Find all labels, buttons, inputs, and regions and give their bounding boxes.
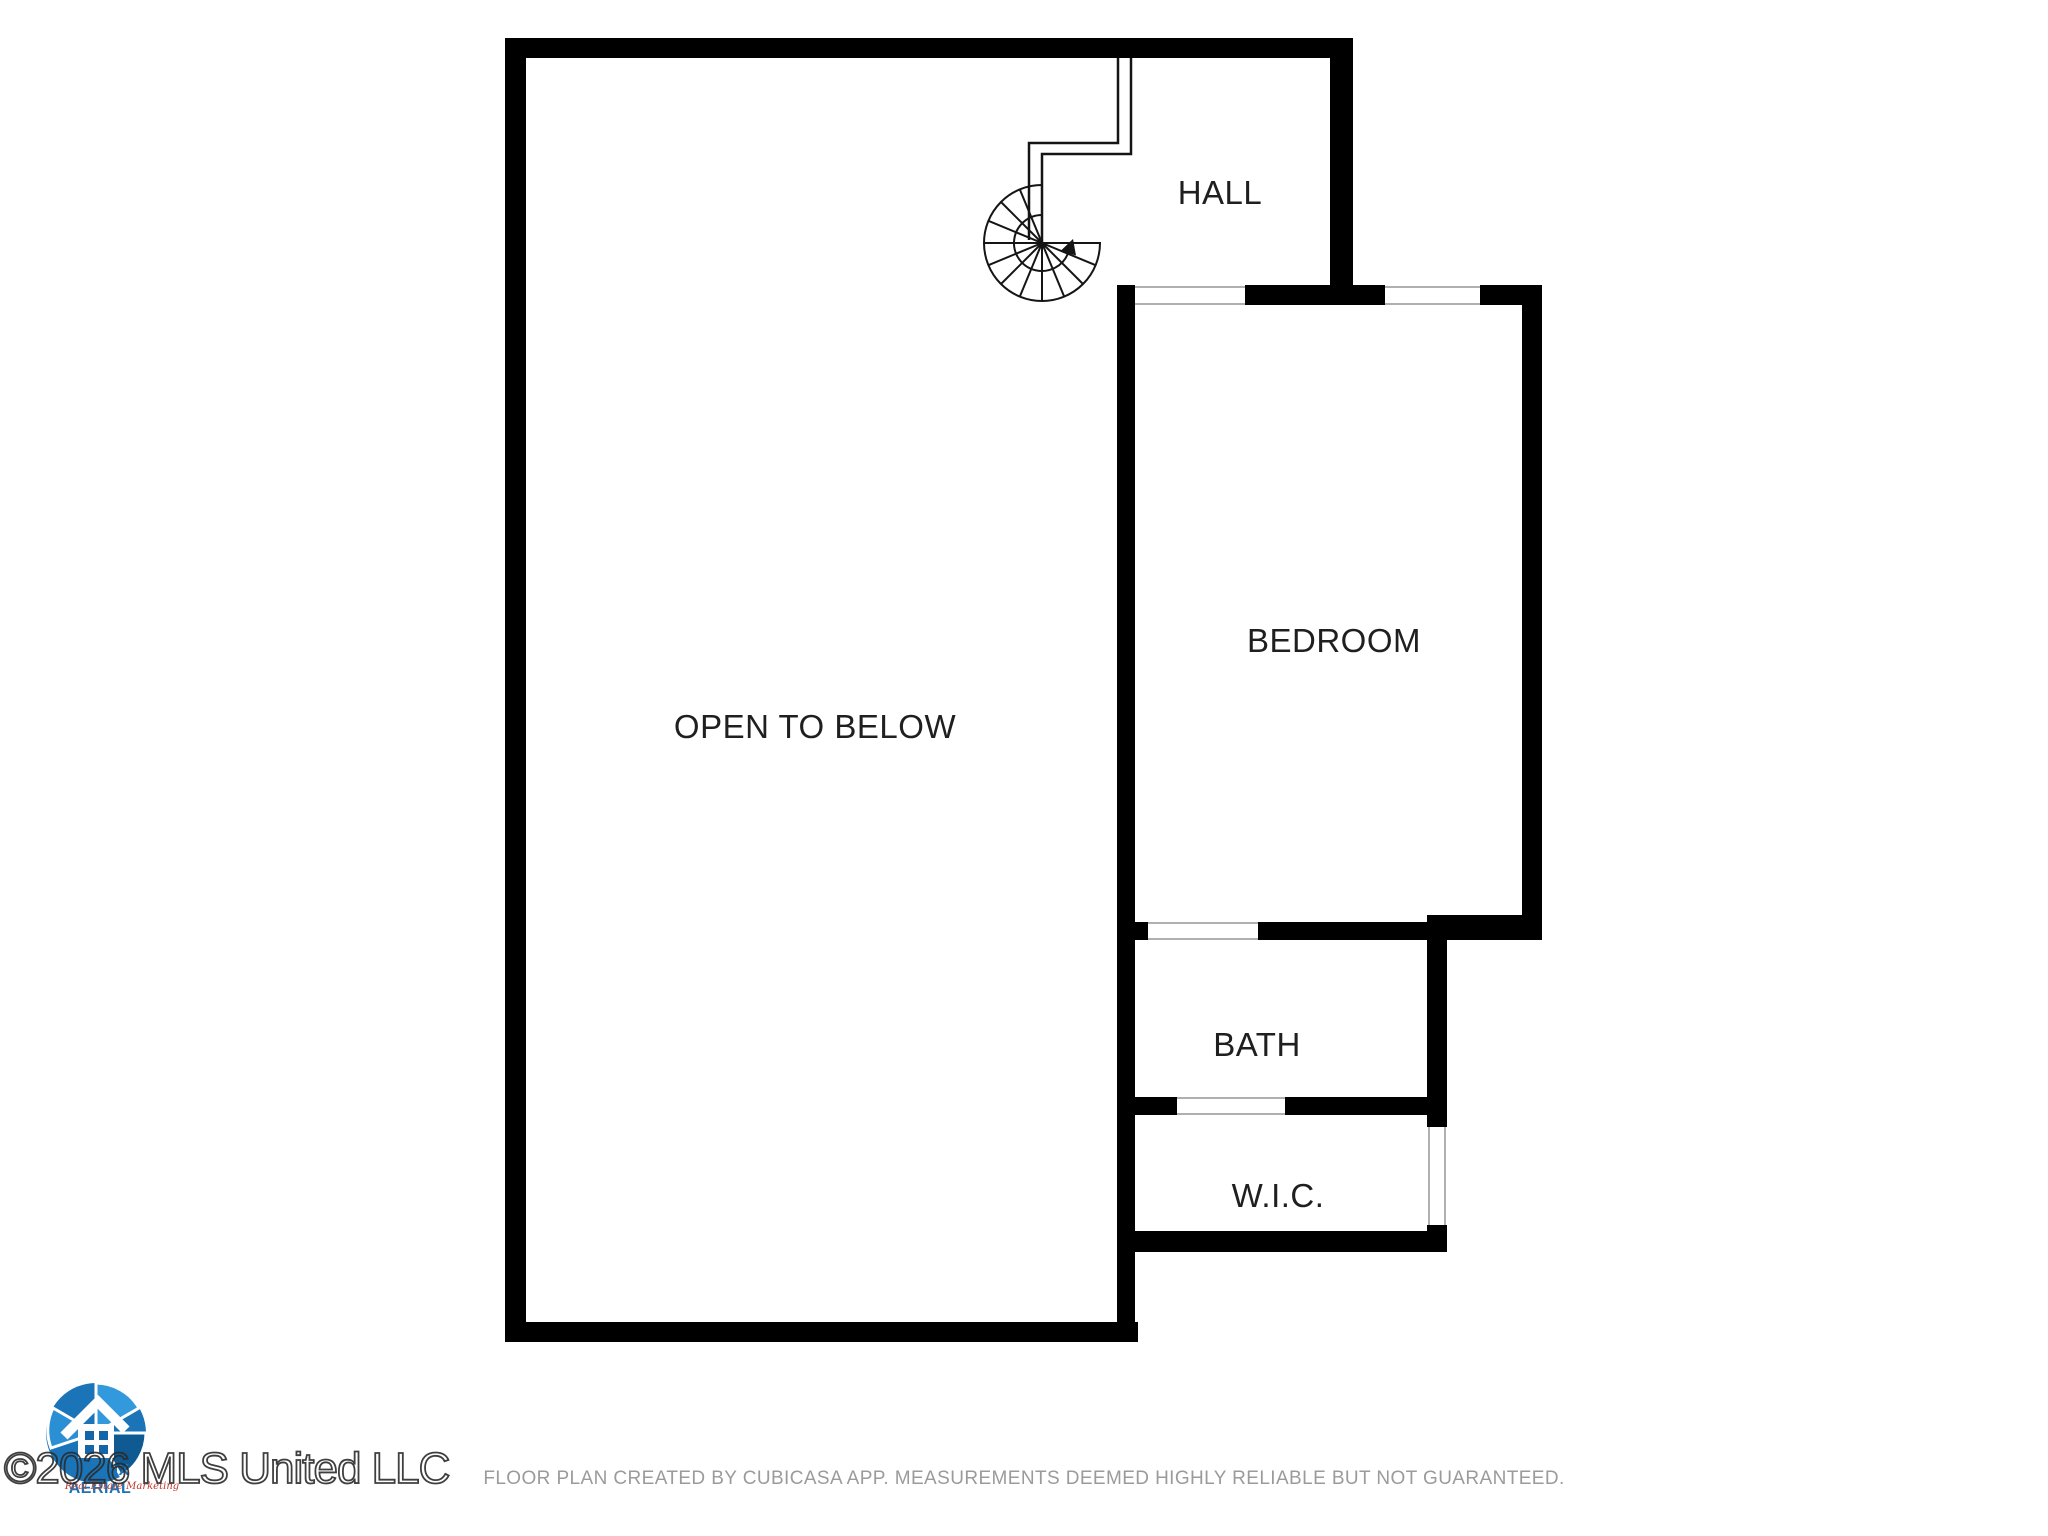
room-label-bath: BATH <box>1213 1026 1301 1064</box>
wall-bottom <box>505 1322 1138 1342</box>
stair-railing <box>1029 58 1131 243</box>
room-label-hall: HALL <box>1178 174 1263 212</box>
wall-bedroom-bottom-mid <box>1258 922 1427 940</box>
wall-bedroom-bottom-left <box>1117 922 1148 940</box>
footer-disclaimer: FLOOR PLAN CREATED BY CUBICASA APP. MEAS… <box>483 1468 1564 1490</box>
wall-wic-bottom <box>1117 1231 1447 1252</box>
wall-hall-right <box>1330 58 1353 305</box>
wall-bedroom-bottom-right <box>1427 915 1542 940</box>
wall-bath-bottom-left <box>1117 1097 1177 1115</box>
floor-plan-canvas: HALL BEDROOM OPEN TO BELOW BATH W.I.C. G… <box>0 0 2048 1536</box>
wall-left <box>505 38 526 1342</box>
wall-bath-right-upper <box>1427 938 1447 1127</box>
room-label-wic: W.I.C. <box>1232 1177 1325 1215</box>
wall-top <box>505 38 1353 58</box>
spiral-staircase-icon <box>984 185 1100 301</box>
floor-plan-drawing <box>0 0 2048 1536</box>
wall-bath-bottom-right <box>1285 1097 1427 1115</box>
wall-bedroom-right <box>1522 285 1542 940</box>
room-label-bedroom: BEDROOM <box>1247 622 1421 660</box>
staircase-up-arrow <box>1061 239 1077 256</box>
wall-bedroom-top <box>1245 285 1385 305</box>
wall-bedroom-left <box>1117 285 1135 1342</box>
walls <box>505 38 1542 1342</box>
watermark-text: ©2026 MLS United LLC <box>4 1444 449 1494</box>
room-label-open-to-below: OPEN TO BELOW <box>674 708 956 746</box>
